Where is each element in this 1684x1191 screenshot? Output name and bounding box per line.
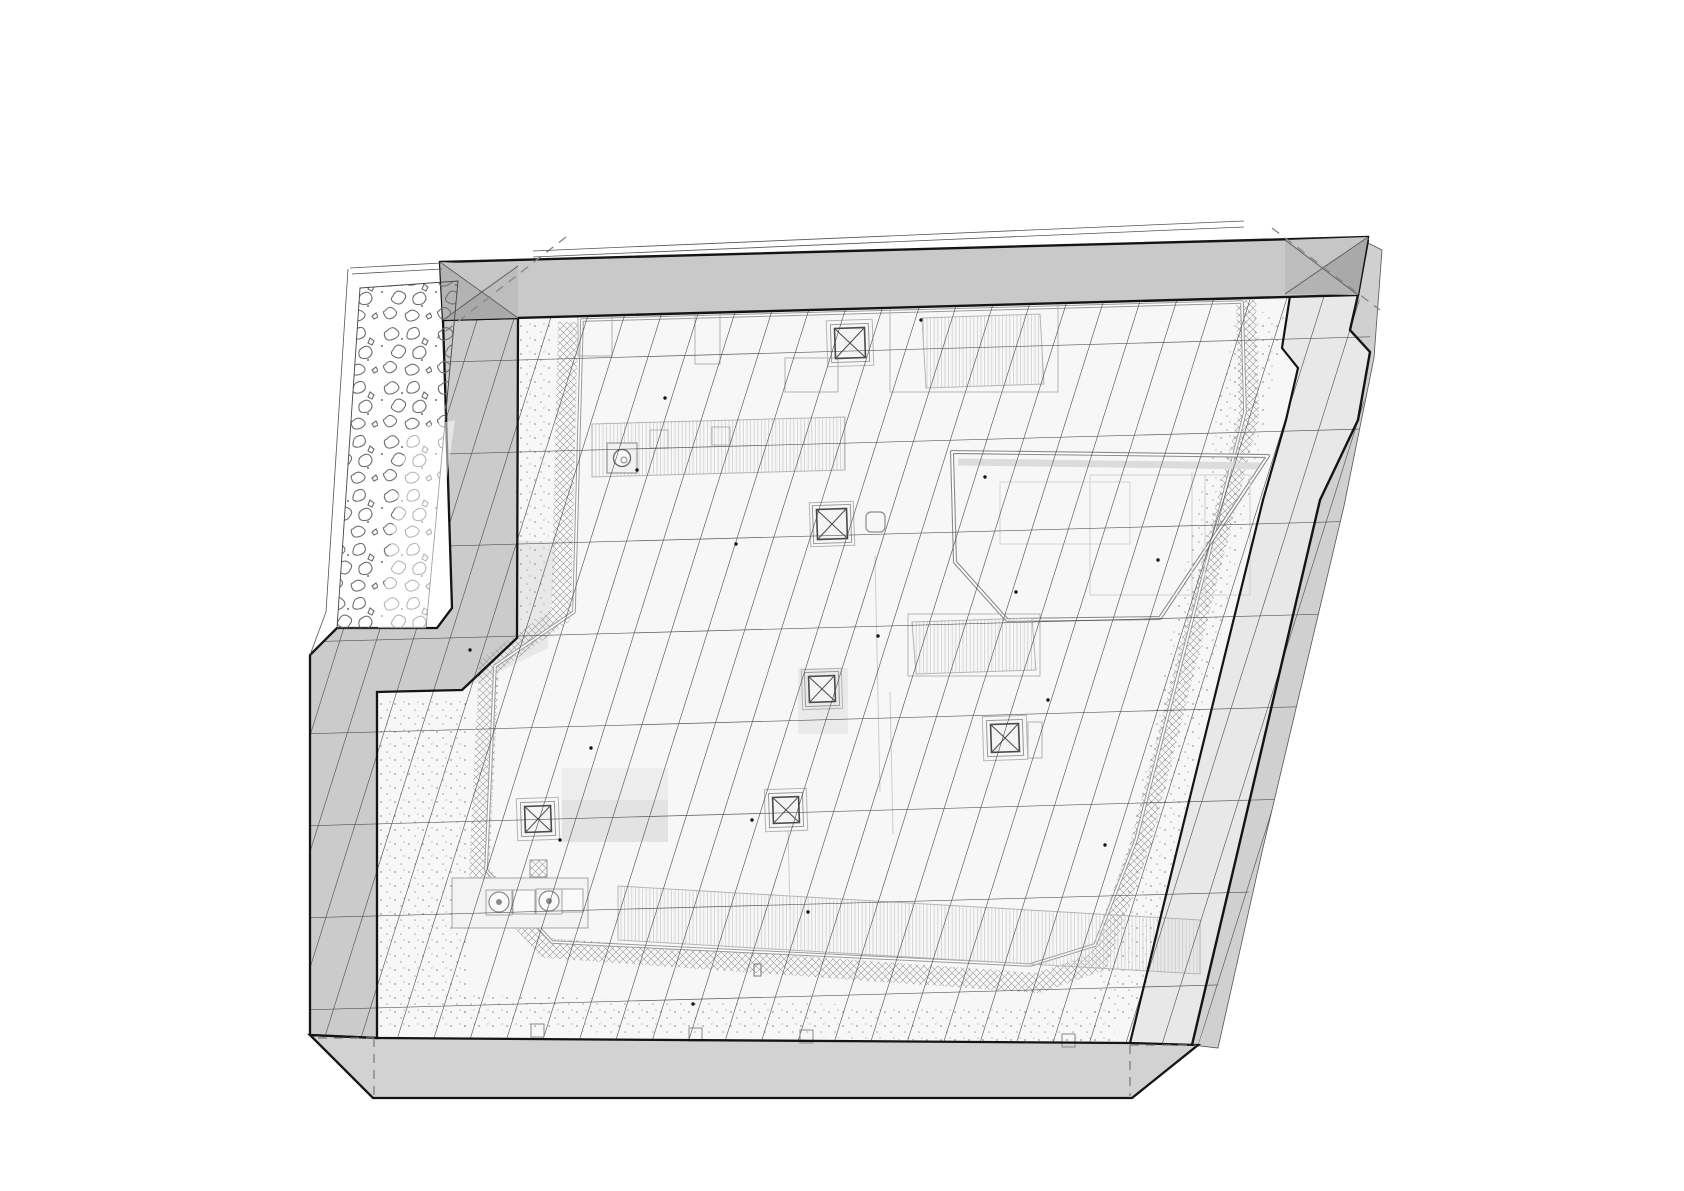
fan-unit [452,878,588,928]
roof-plan-drawing [0,0,1684,1191]
bottom-parapet-band [310,1035,1198,1098]
upper-roof-shadow [958,462,1262,466]
roof-vent [607,443,637,473]
architectural-roof-plan-page [0,0,1684,1191]
